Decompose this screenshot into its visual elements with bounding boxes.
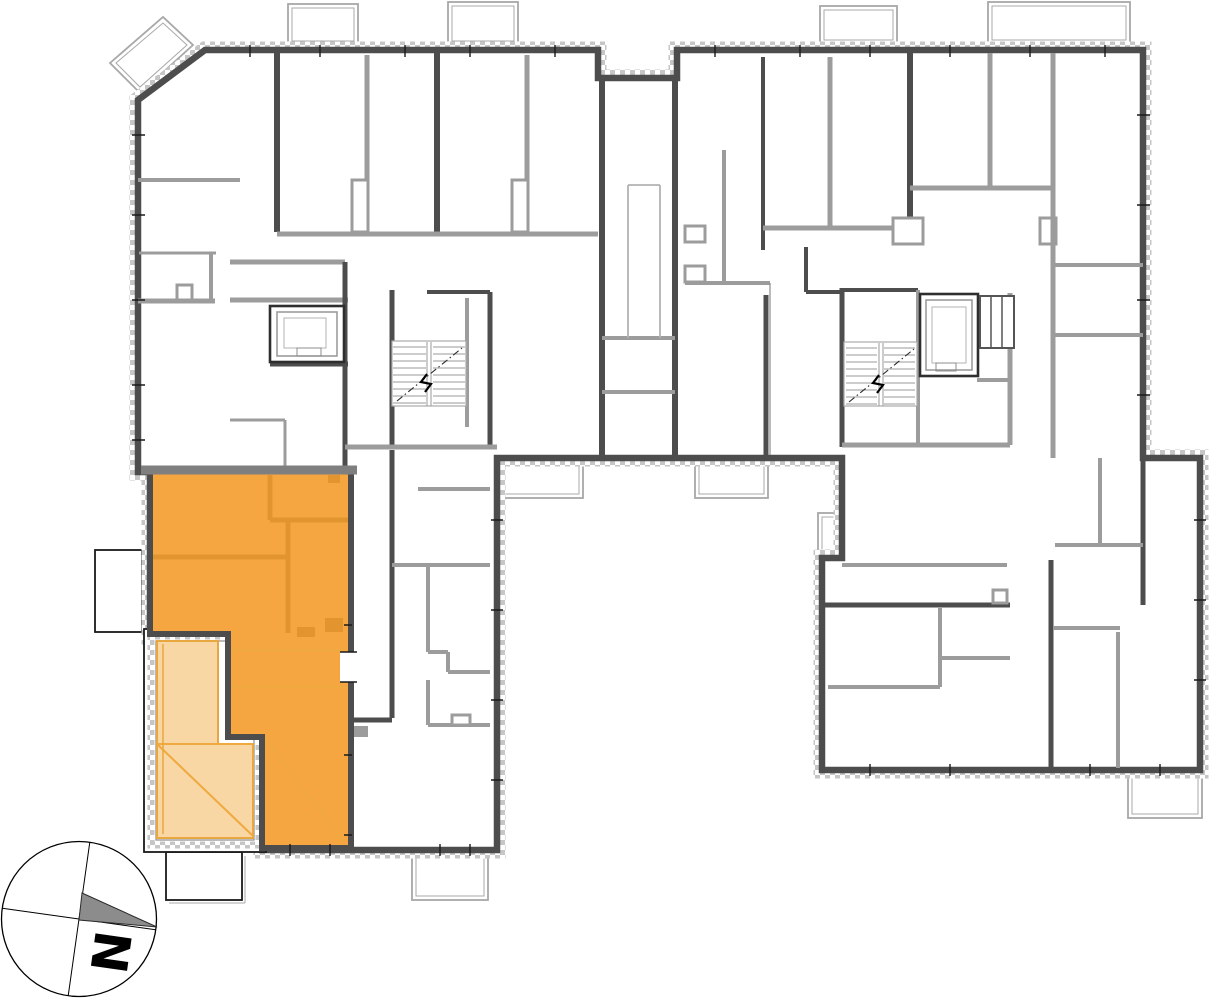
floor-plan-page: N <box>0 0 1209 998</box>
elevator-icon <box>270 306 344 362</box>
balcony <box>95 550 142 632</box>
balcony <box>988 2 1130 44</box>
door-opening <box>340 652 357 682</box>
north-label: N <box>78 927 141 977</box>
staircase-right <box>844 342 917 406</box>
compass-rose: N <box>0 831 167 998</box>
stairs-icon <box>844 342 917 406</box>
floor-plan-canvas: N <box>0 0 1209 998</box>
balcony <box>288 4 358 45</box>
staircase-left <box>392 341 466 406</box>
balcony <box>448 2 518 45</box>
shaft <box>980 296 1014 348</box>
balcony <box>166 852 242 900</box>
balcony <box>820 6 897 44</box>
elevator-left <box>270 306 344 362</box>
balcony <box>412 852 488 900</box>
elevator-icon <box>920 294 978 376</box>
